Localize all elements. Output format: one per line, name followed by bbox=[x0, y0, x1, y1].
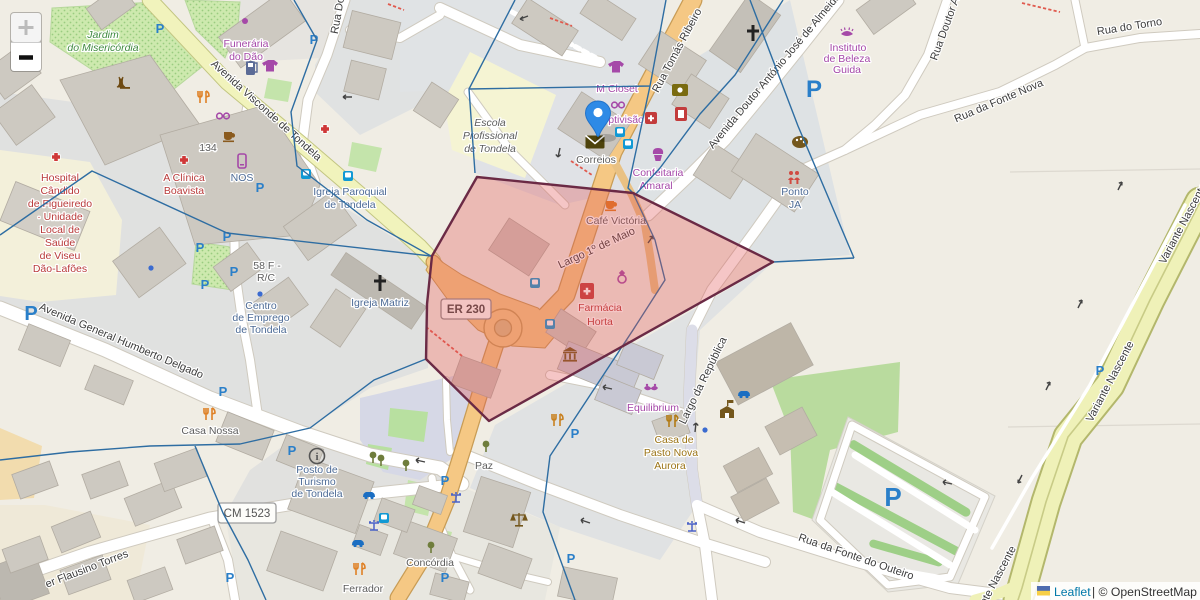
svg-text:Ponto: Ponto bbox=[781, 186, 809, 198]
svg-text:P: P bbox=[288, 443, 297, 458]
svg-text:Casa de: Casa de bbox=[654, 434, 693, 446]
svg-text:i: i bbox=[315, 451, 318, 463]
svg-text:Ferrador: Ferrador bbox=[343, 583, 384, 595]
svg-text:Concórdia: Concórdia bbox=[406, 557, 454, 569]
svg-text:de Emprego: de Emprego bbox=[232, 312, 289, 324]
svg-text:Casa Nossa: Casa Nossa bbox=[181, 425, 238, 437]
svg-text:Saúde: Saúde bbox=[45, 237, 76, 249]
svg-text:do Dão: do Dão bbox=[229, 51, 263, 63]
svg-text:de Tondela: de Tondela bbox=[291, 488, 342, 500]
svg-text:R/C: R/C bbox=[257, 272, 276, 284]
svg-text:do Misericórdia: do Misericórdia bbox=[67, 42, 138, 54]
svg-text:134: 134 bbox=[199, 142, 217, 154]
svg-text:Jardim: Jardim bbox=[86, 29, 119, 41]
svg-text:P: P bbox=[1096, 363, 1105, 378]
svg-text:Local de: Local de bbox=[40, 224, 80, 236]
svg-text:CM 1523: CM 1523 bbox=[224, 508, 271, 520]
svg-text:M Closet: M Closet bbox=[596, 83, 638, 95]
svg-text:P: P bbox=[201, 277, 210, 292]
svg-text:P: P bbox=[884, 482, 901, 512]
svg-text:58 F -: 58 F - bbox=[253, 260, 281, 272]
svg-text:P: P bbox=[196, 240, 205, 255]
svg-text:· Unidade: · Unidade bbox=[37, 211, 83, 223]
svg-text:Igreja Matriz: Igreja Matriz bbox=[351, 297, 409, 309]
svg-text:de Viseu: de Viseu bbox=[40, 250, 81, 262]
svg-text:de Tondela: de Tondela bbox=[235, 324, 286, 336]
svg-text:de Tondela: de Tondela bbox=[464, 143, 516, 155]
svg-text:JA: JA bbox=[789, 199, 801, 211]
svg-text:Turismo: Turismo bbox=[298, 476, 336, 488]
svg-text:Amaral: Amaral bbox=[639, 180, 672, 192]
svg-text:Hospital: Hospital bbox=[41, 172, 79, 184]
svg-text:Leaflet: Leaflet bbox=[1054, 585, 1091, 599]
svg-text:Aurora: Aurora bbox=[654, 460, 686, 472]
svg-text:P: P bbox=[571, 426, 580, 441]
svg-text:de Tondela: de Tondela bbox=[324, 199, 375, 211]
svg-text:Escola: Escola bbox=[474, 117, 506, 129]
svg-text:Boavista: Boavista bbox=[164, 185, 204, 197]
svg-text:Confeitaria: Confeitaria bbox=[633, 167, 684, 179]
svg-text:Cândido: Cândido bbox=[40, 185, 79, 197]
svg-text:P: P bbox=[24, 303, 37, 325]
svg-text:Centro: Centro bbox=[245, 300, 277, 312]
svg-text:P: P bbox=[441, 570, 450, 585]
svg-text:Correios: Correios bbox=[576, 154, 616, 166]
svg-text:Profissional: Profissional bbox=[463, 130, 518, 142]
svg-text:P: P bbox=[806, 76, 822, 103]
svg-text:P: P bbox=[256, 180, 265, 195]
svg-text:Pasto Nova: Pasto Nova bbox=[644, 447, 698, 459]
svg-text:| © OpenStreetMap: | © OpenStreetMap bbox=[1092, 585, 1197, 599]
svg-text:Paz: Paz bbox=[475, 460, 493, 472]
svg-text:A Clínica: A Clínica bbox=[163, 172, 205, 184]
svg-text:Guida: Guida bbox=[833, 64, 861, 76]
svg-text:P: P bbox=[226, 570, 235, 585]
svg-text:P: P bbox=[441, 473, 450, 488]
svg-text:Dão-Lafões: Dão-Lafões bbox=[33, 263, 87, 275]
svg-text:P: P bbox=[156, 21, 165, 36]
svg-text:Funerária: Funerária bbox=[224, 38, 269, 50]
svg-text:P: P bbox=[219, 384, 228, 399]
svg-text:Equilibrium: Equilibrium bbox=[627, 402, 679, 414]
svg-text:NOS: NOS bbox=[231, 172, 254, 184]
svg-text:P: P bbox=[567, 551, 576, 566]
svg-text:Posto de: Posto de bbox=[296, 464, 338, 476]
svg-text:P: P bbox=[230, 264, 239, 279]
